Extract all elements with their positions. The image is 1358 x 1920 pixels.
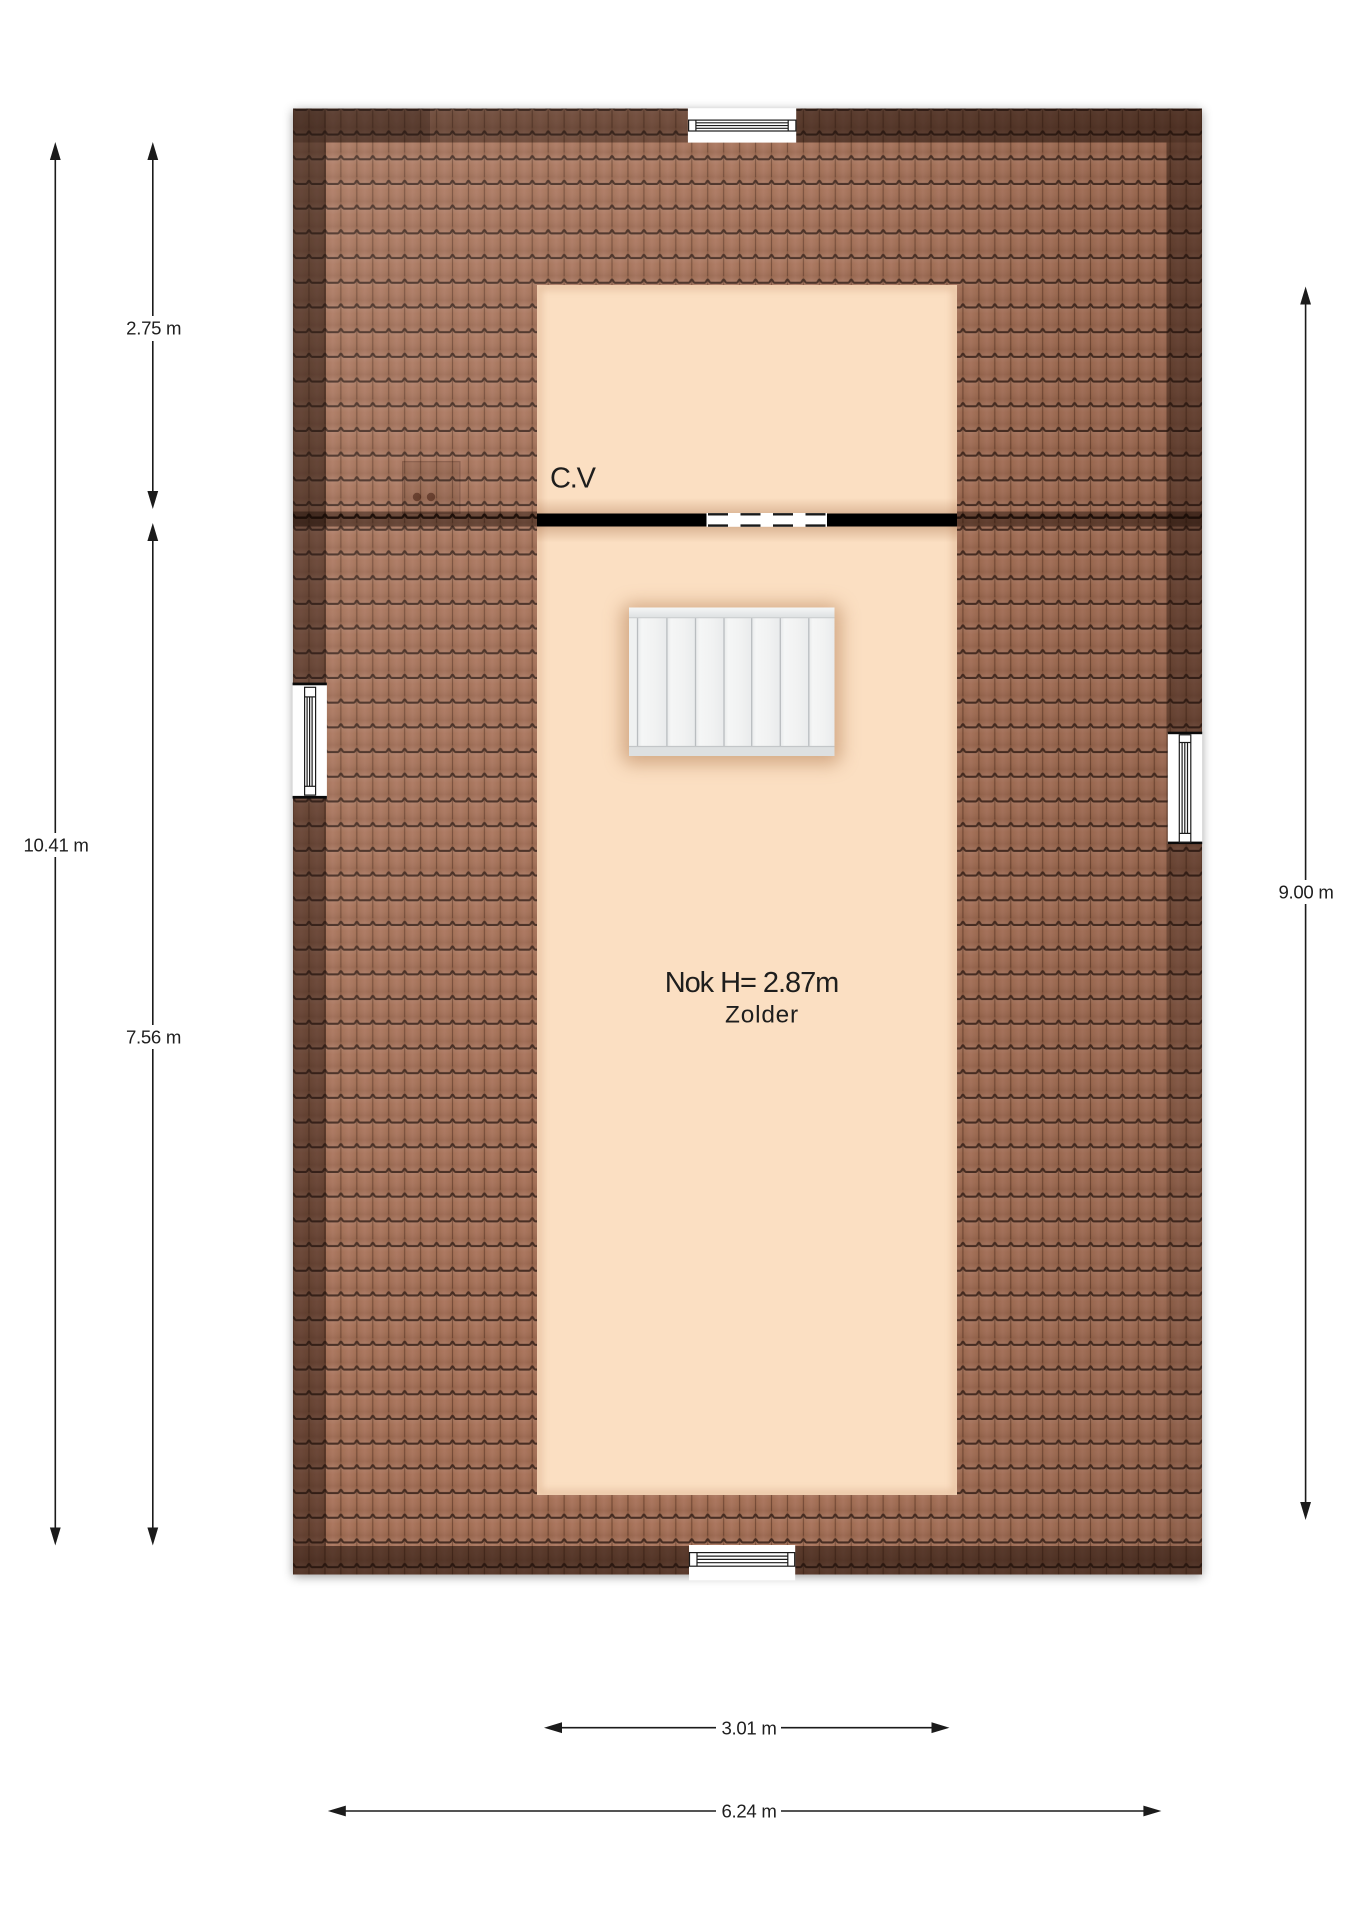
svg-text:6.24 m: 6.24 m: [721, 1801, 776, 1822]
svg-text:Zolder: Zolder: [725, 1002, 799, 1029]
svg-text:3.01 m: 3.01 m: [721, 1717, 776, 1738]
svg-text:2.75 m: 2.75 m: [126, 318, 181, 339]
svg-text:10.41 m: 10.41 m: [23, 835, 88, 856]
svg-text:C.V: C.V: [550, 463, 597, 495]
svg-text:Nok H= 2.87m: Nok H= 2.87m: [665, 967, 839, 999]
svg-text:7.56 m: 7.56 m: [126, 1027, 181, 1048]
svg-text:9.00 m: 9.00 m: [1278, 881, 1333, 902]
